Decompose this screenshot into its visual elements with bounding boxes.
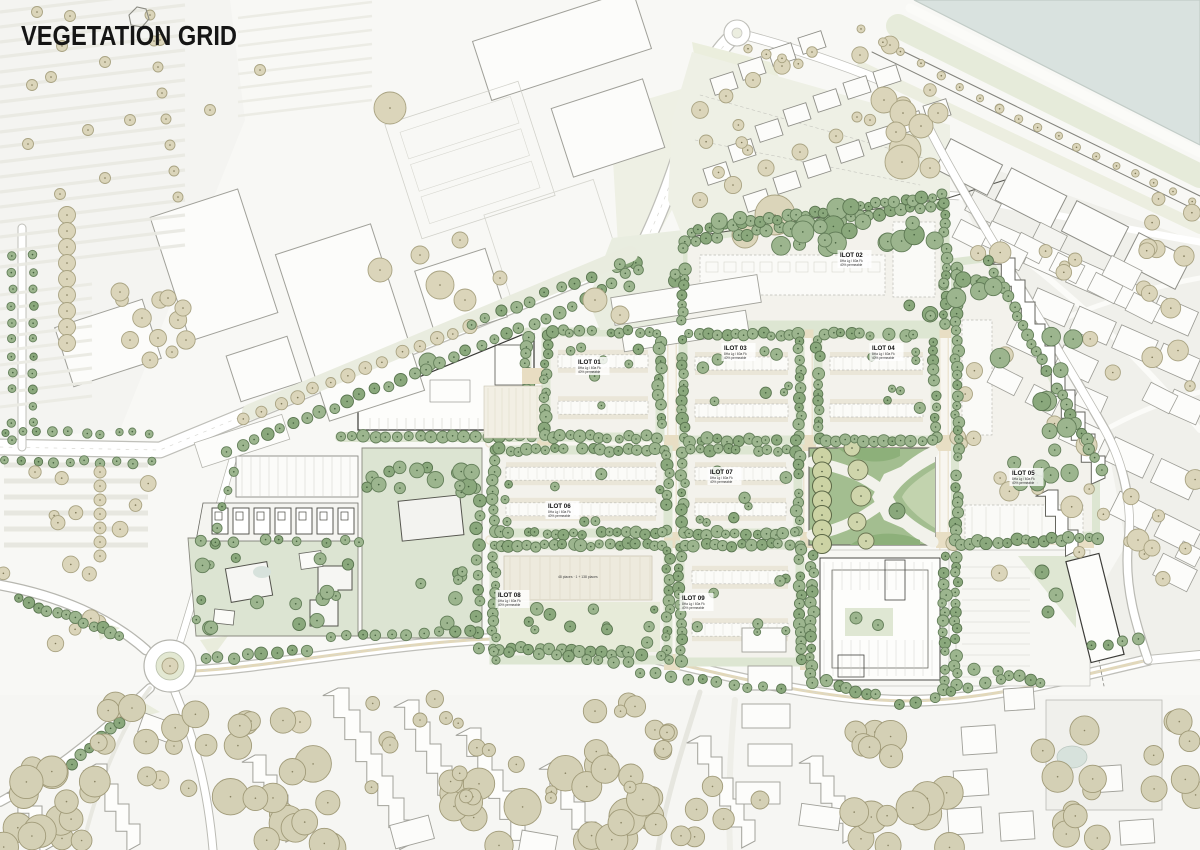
svg-text:ILOT 04: ILOT 04 xyxy=(872,345,895,352)
svg-text:ILOT 06: ILOT 06 xyxy=(548,503,571,510)
svg-text:ILOT 05: ILOT 05 xyxy=(1012,470,1035,477)
svg-text:40% permeable: 40% permeable xyxy=(840,263,863,267)
svg-text:ILOT 07: ILOT 07 xyxy=(710,469,733,476)
svg-text:ILOT 09: ILOT 09 xyxy=(682,595,705,602)
svg-text:VEGETATION GRID: VEGETATION GRID xyxy=(21,20,237,51)
svg-text:ILOT 02: ILOT 02 xyxy=(840,252,863,259)
svg-text:40% permeable: 40% permeable xyxy=(724,356,747,360)
svg-text:40% permeable: 40% permeable xyxy=(498,603,521,607)
svg-text:ILOT 08: ILOT 08 xyxy=(498,592,521,599)
svg-text:40% permeable: 40% permeable xyxy=(872,356,895,360)
svg-text:48 places · 1 + 138 places: 48 places · 1 + 138 places xyxy=(558,575,598,579)
svg-text:40% permeable: 40% permeable xyxy=(578,370,601,374)
svg-text:40% permeable: 40% permeable xyxy=(548,514,571,518)
svg-text:ILOT 01: ILOT 01 xyxy=(578,359,601,366)
svg-text:ILOT 03: ILOT 03 xyxy=(724,345,747,352)
svg-text:40% permeable: 40% permeable xyxy=(710,480,733,484)
svg-text:40% permeable: 40% permeable xyxy=(1012,481,1035,485)
svg-text:40% permeable: 40% permeable xyxy=(682,606,705,610)
